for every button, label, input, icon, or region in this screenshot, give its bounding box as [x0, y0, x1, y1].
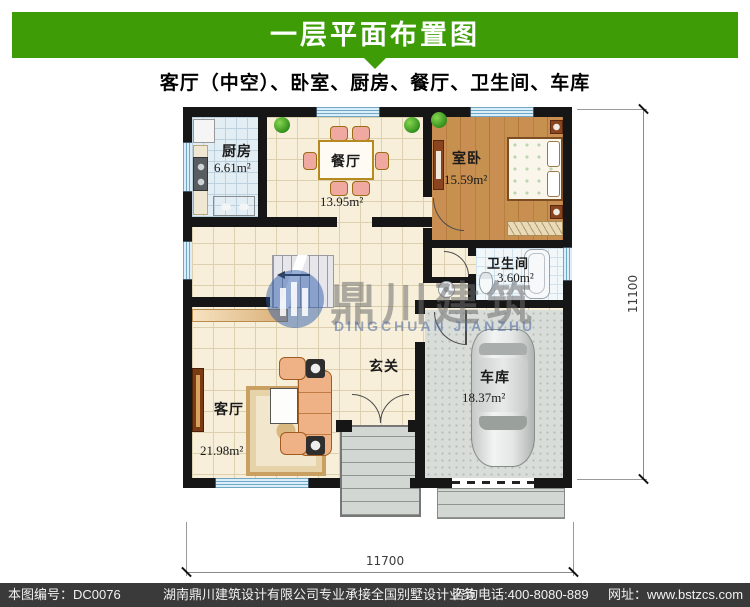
kitchen-sink: [213, 196, 255, 216]
wall-garage-stub-right: [534, 478, 572, 488]
porch-stub-left: [336, 420, 352, 432]
side-table: [306, 436, 325, 455]
dim-label-height: 11100: [626, 269, 640, 319]
wall-below-dining: [372, 217, 432, 227]
dining-chair: [352, 126, 370, 141]
dim-ext-line: [577, 479, 647, 480]
tv-cabinet: [192, 368, 204, 432]
dim-line-right: [643, 109, 644, 480]
car-windshield: [479, 416, 527, 430]
footer-website: 网址：www.bstzcs.com: [608, 583, 743, 607]
room-label-kitchen: 厨房: [222, 141, 252, 161]
wall-mid-left: [183, 297, 270, 307]
armchair: [279, 357, 306, 380]
wall-kitchen-dining: [258, 117, 267, 217]
car-rear-window: [479, 343, 527, 355]
wardrobe: [507, 221, 563, 236]
nightstand: [550, 120, 563, 134]
dim-label-width: 11700: [345, 554, 425, 568]
dining-chair: [330, 126, 348, 141]
room-area-dining: 13.95m²: [320, 194, 363, 210]
nightstand: [550, 205, 563, 219]
window-hall-left: [183, 241, 192, 280]
room-label-garage: 车库: [480, 367, 510, 387]
wall-garage-stub-left: [437, 478, 452, 488]
room-label-living: 客厅: [214, 399, 244, 419]
window-bathroom-right: [563, 247, 572, 281]
fridge: [193, 119, 215, 143]
footer-serial: 本图编号：DC0076: [8, 583, 121, 607]
wall-bath-left-a: [468, 248, 476, 256]
window-kitchen-left: [183, 142, 192, 192]
plant-icon: [431, 112, 447, 128]
pillow: [547, 141, 560, 167]
room-label-foyer: 玄关: [369, 356, 399, 376]
room-area-living: 21.98m²: [200, 443, 243, 459]
plant-icon: [404, 117, 420, 133]
room-area-kitchen: 6.61m²: [214, 160, 251, 176]
stove: [193, 157, 208, 191]
garage-door-dashed: [452, 481, 534, 484]
dim-ext-line: [573, 522, 574, 576]
side-table: [306, 359, 325, 378]
dining-chair: [375, 152, 389, 170]
porch-stub-right: [408, 420, 424, 432]
garage-ramp: [437, 488, 565, 519]
plant-icon: [274, 117, 290, 133]
room-area-bedroom: 15.59m²: [444, 172, 487, 188]
room-label-bedroom: 室卧: [452, 148, 482, 168]
dim-ext-line: [577, 109, 647, 110]
entry-porch-steps: [340, 425, 421, 517]
dim-ext-line: [186, 522, 187, 576]
page: 一层平面布置图 客厅（中空）、卧室、厨房、餐厅、卫生间、车库: [0, 0, 750, 607]
dining-chair: [303, 152, 317, 170]
footer-phone: 咨询电话:400-8080-889: [452, 583, 589, 607]
wall-bed-bath: [432, 240, 572, 248]
dingchuan-logo-icon: [266, 270, 324, 328]
window-living-bottom: [215, 478, 309, 488]
window-bedroom-top: [470, 107, 534, 117]
wall-bottom-mid: [410, 478, 437, 488]
footer-bar: 本图编号：DC0076 湖南鼎川建筑设计有限公司专业承接全国别墅设计业务 咨询电…: [0, 583, 750, 607]
pillow: [547, 171, 560, 197]
wall-below-kitchen: [192, 217, 337, 227]
armchair: [280, 432, 307, 455]
room-area-garage: 18.37m²: [462, 390, 505, 406]
window-dining-top: [316, 107, 380, 117]
floor-plan: 厨房 6.61m² 餐厅 13.95m² 室卧 15.59m² 卫生间 3.60…: [0, 0, 750, 607]
dim-line-bottom: [186, 572, 574, 573]
coffee-table: [270, 388, 298, 424]
room-label-dining: 餐厅: [331, 151, 361, 171]
footer-company: 湖南鼎川建筑设计有限公司专业承接全国别墅设计业务: [163, 583, 475, 607]
dresser: [433, 140, 444, 190]
watermark-english: DINGCHUAN JIANZHU: [334, 318, 535, 334]
wall-right: [563, 107, 572, 488]
wall-garage-left-b: [415, 342, 425, 478]
